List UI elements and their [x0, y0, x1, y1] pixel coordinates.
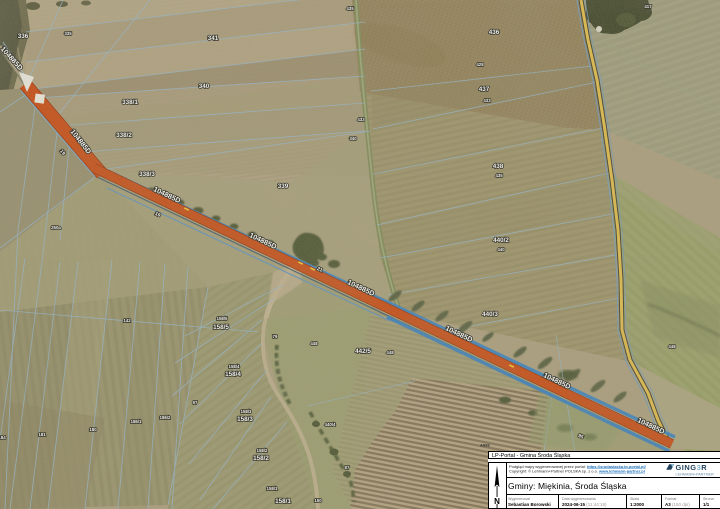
svg-text:LEHMANN+PARTNER: LEHMANN+PARTNER: [676, 472, 715, 476]
svg-text:N: N: [494, 497, 500, 506]
svg-text:GING3R: GING3R: [676, 463, 708, 472]
